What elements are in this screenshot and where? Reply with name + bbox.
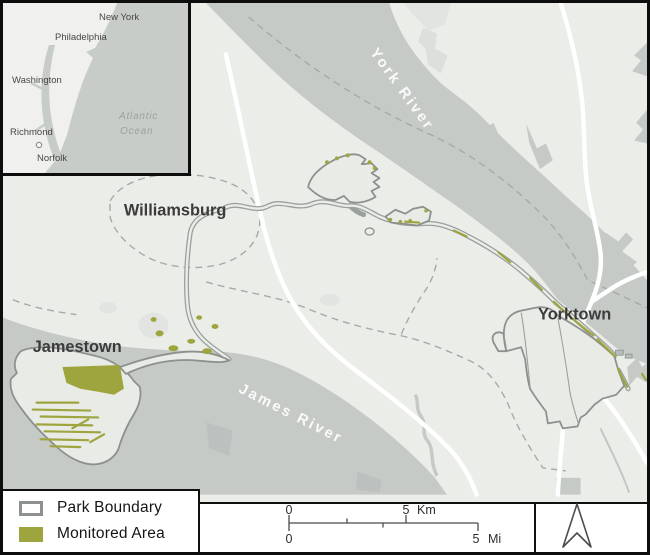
inset-norfolk-label: Norfolk: [37, 153, 67, 164]
monitored-area-swatch: [19, 527, 43, 542]
scale-mi-five: 5: [473, 532, 480, 546]
park-boundary-label: Park Boundary: [57, 499, 162, 517]
yorktown-label: Yorktown: [538, 306, 611, 324]
map-frame: Williamsburg Jamestown Yorktown York Riv…: [0, 0, 650, 555]
inset-ocean-label-line2: Ocean: [120, 126, 153, 137]
inset-ocean-label-line1: Atlantic: [118, 111, 158, 122]
footer-divider: [534, 502, 536, 552]
north-arrow-icon: [563, 504, 591, 547]
inset-map: New York Philadelphia Washington Richmon…: [3, 3, 191, 176]
inset-canvas: New York Philadelphia Washington Richmon…: [3, 3, 188, 173]
scale-bar: 0 5 Km 0 5 Mi: [265, 504, 515, 550]
scale-bar-lines: [289, 515, 478, 531]
north-arrow: [550, 502, 610, 549]
scale-km-five: 5: [403, 504, 410, 517]
legend-row-monitored-area: Monitored Area: [19, 525, 198, 543]
park-boundary-swatch: [19, 501, 43, 516]
legend: Park Boundary Monitored Area: [3, 489, 200, 552]
inset-richmond-label: Richmond: [10, 127, 53, 138]
scale-mi-zero: 0: [286, 532, 293, 546]
scale-mi-unit: Mi: [488, 532, 501, 546]
inset-park-location-marker: [36, 142, 41, 147]
inset-new-york-label: New York: [99, 12, 139, 23]
inset-washington-label: Washington: [12, 75, 62, 86]
inset-philadelphia-label: Philadelphia: [55, 32, 107, 43]
legend-row-park-boundary: Park Boundary: [19, 499, 198, 517]
scale-km-unit: Km: [417, 504, 436, 517]
scale-km-zero: 0: [286, 504, 293, 517]
pond: [365, 228, 374, 235]
williamsburg-label: Williamsburg: [124, 202, 226, 220]
jamestown-label: Jamestown: [33, 338, 122, 356]
monitored-area-label: Monitored Area: [57, 525, 165, 543]
